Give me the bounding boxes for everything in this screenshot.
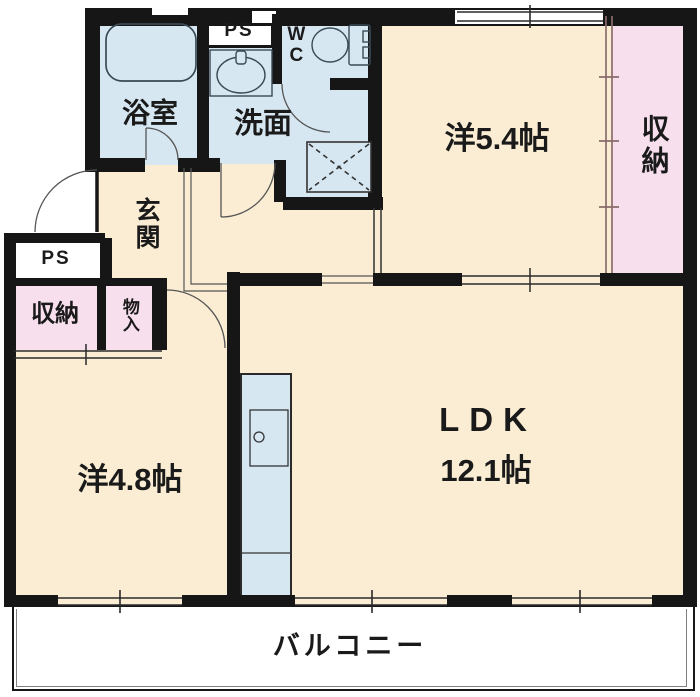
- wall-closets-top: [5, 278, 167, 286]
- wall-ldk-west: [227, 272, 240, 602]
- western-room-54-label: 洋5.4帖: [444, 123, 549, 155]
- wall-washer-bottom: [283, 197, 383, 210]
- wall-bottom-c: [447, 595, 512, 607]
- bathroom-window: [152, 3, 188, 15]
- ldk-label: LDK: [439, 403, 537, 437]
- wall-bottom-b: [182, 595, 295, 607]
- wall-bottom-a: [12, 595, 58, 607]
- pipe-space-left-label: PS: [41, 249, 70, 269]
- wall-ldk-north-c: [600, 273, 695, 286]
- closet-right-label: 収納: [639, 114, 668, 178]
- closet-left-label: 収納: [31, 303, 79, 328]
- wall-closet-divider: [97, 282, 106, 350]
- wall-bathroom-right: [197, 8, 209, 168]
- washroom-label: 洗面: [234, 109, 292, 139]
- pipe-space-top-label: PS: [224, 21, 253, 41]
- kitchen-counter: [240, 373, 292, 598]
- window-top: [455, 10, 603, 24]
- outside-area: [0, 0, 98, 233]
- wall-right: [683, 8, 697, 607]
- wall-bathroom-bottom-a: [85, 158, 145, 172]
- balcony-label: バルコニー: [273, 632, 427, 660]
- western-room-48-label: 洋4.8帖: [77, 464, 182, 496]
- wall-wc-bottom: [330, 78, 372, 90]
- wc-label: WC: [286, 24, 306, 66]
- wall-hall-washer: [274, 160, 286, 202]
- floor-plan: 浴室 PS WC 洗面 洋5.4帖 収納 玄関 PS 収納 物入 洋4.8帖 L…: [0, 0, 700, 697]
- wall-ldk-north-b: [373, 273, 462, 286]
- wall-bathroom-bottom-b: [178, 158, 220, 172]
- wall-ps-wc-divider: [272, 14, 282, 84]
- entrance-label: 玄関: [133, 197, 159, 251]
- bathroom-floor: [98, 14, 205, 165]
- wall-wc-room54: [368, 8, 382, 208]
- wall-left-upper: [85, 8, 100, 170]
- wall-bottom-d: [652, 595, 695, 607]
- wall-psleft-top: [5, 233, 105, 243]
- storage-label: 物入: [120, 298, 138, 332]
- wall-left-lower: [4, 233, 16, 607]
- bathroom-label: 浴室: [122, 98, 178, 127]
- wall-ldk-north-a: [227, 273, 322, 286]
- ldk-size-label: 12.1帖: [440, 455, 531, 487]
- wall-storage-right: [152, 278, 167, 350]
